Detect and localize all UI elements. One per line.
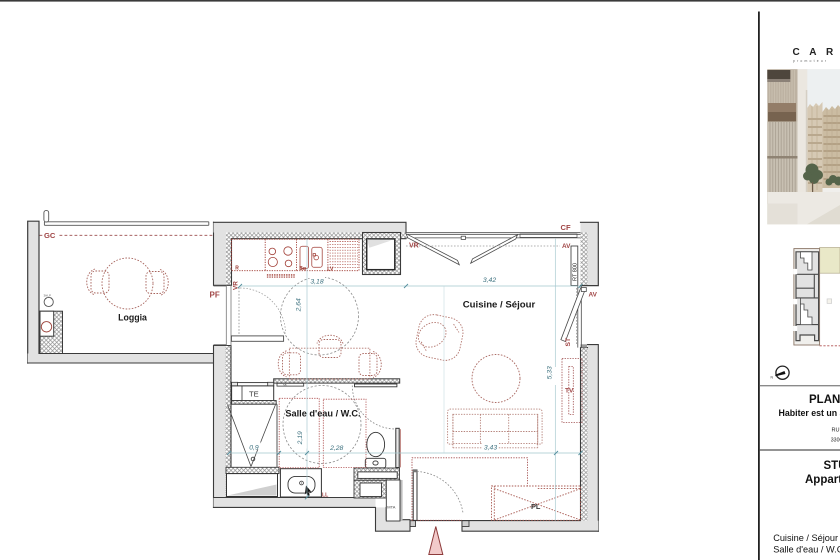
svg-text:TE: TE	[249, 390, 259, 399]
svg-text:RT 800: RT 800	[573, 263, 579, 281]
svg-text:3,42: 3,42	[483, 277, 496, 284]
svg-text:Salle d'eau / W.C: Salle d'eau / W.C	[773, 545, 840, 555]
svg-text:Habiter est un art: Habiter est un art	[779, 408, 840, 418]
svg-text:PL: PL	[531, 502, 541, 511]
svg-text:VR: VR	[409, 243, 419, 250]
svg-text:CF: CF	[561, 223, 571, 232]
svg-text:Salle d'eau / W.C.: Salle d'eau / W.C.	[285, 409, 360, 419]
svg-text:AV: AV	[562, 243, 571, 250]
svg-text:RUE DES ARTS: RUE DES ARTS	[832, 427, 840, 433]
svg-text:Loggia: Loggia	[118, 313, 147, 323]
svg-text:Appartement: Appartement	[805, 474, 840, 486]
svg-text:R: R	[235, 266, 239, 272]
svg-text:AV: AV	[589, 291, 598, 298]
svg-text:3,18: 3,18	[310, 279, 323, 286]
svg-text:5,33: 5,33	[547, 366, 554, 379]
svg-text:PLAN DE VENTE: PLAN DE VENTE	[809, 394, 840, 406]
svg-text:ST: ST	[565, 337, 572, 347]
svg-text:MTA: MTA	[387, 505, 395, 510]
svg-text:2,28: 2,28	[329, 445, 343, 452]
svg-text:33000 BORDEAUX: 33000 BORDEAUX	[831, 438, 840, 444]
svg-text:SB: SB	[283, 383, 287, 387]
svg-text:GC: GC	[44, 231, 56, 240]
svg-text:Cuisine / Séjour: Cuisine / Séjour	[773, 533, 838, 543]
svg-text:3,43: 3,43	[484, 445, 497, 452]
svg-text:LV: LV	[327, 266, 334, 272]
svg-text:VR: VR	[233, 281, 240, 290]
svg-text:TV: TV	[565, 388, 574, 395]
svg-text:PF: PF	[210, 291, 220, 300]
svg-text:Cuisine / Séjour: Cuisine / Séjour	[463, 299, 536, 310]
svg-text:2,19: 2,19	[297, 431, 304, 445]
svg-text:0,9: 0,9	[249, 445, 259, 452]
svg-text:promoteur: promoteur	[793, 59, 828, 63]
svg-text:2,64: 2,64	[295, 298, 302, 312]
svg-text:Bq: Bq	[299, 266, 306, 272]
svg-text:3HLP: 3HLP	[44, 294, 52, 298]
svg-text:CAR: CAR	[793, 47, 840, 58]
svg-text:STUDIO: STUDIO	[824, 460, 840, 472]
svg-text:LL: LL	[322, 493, 329, 499]
